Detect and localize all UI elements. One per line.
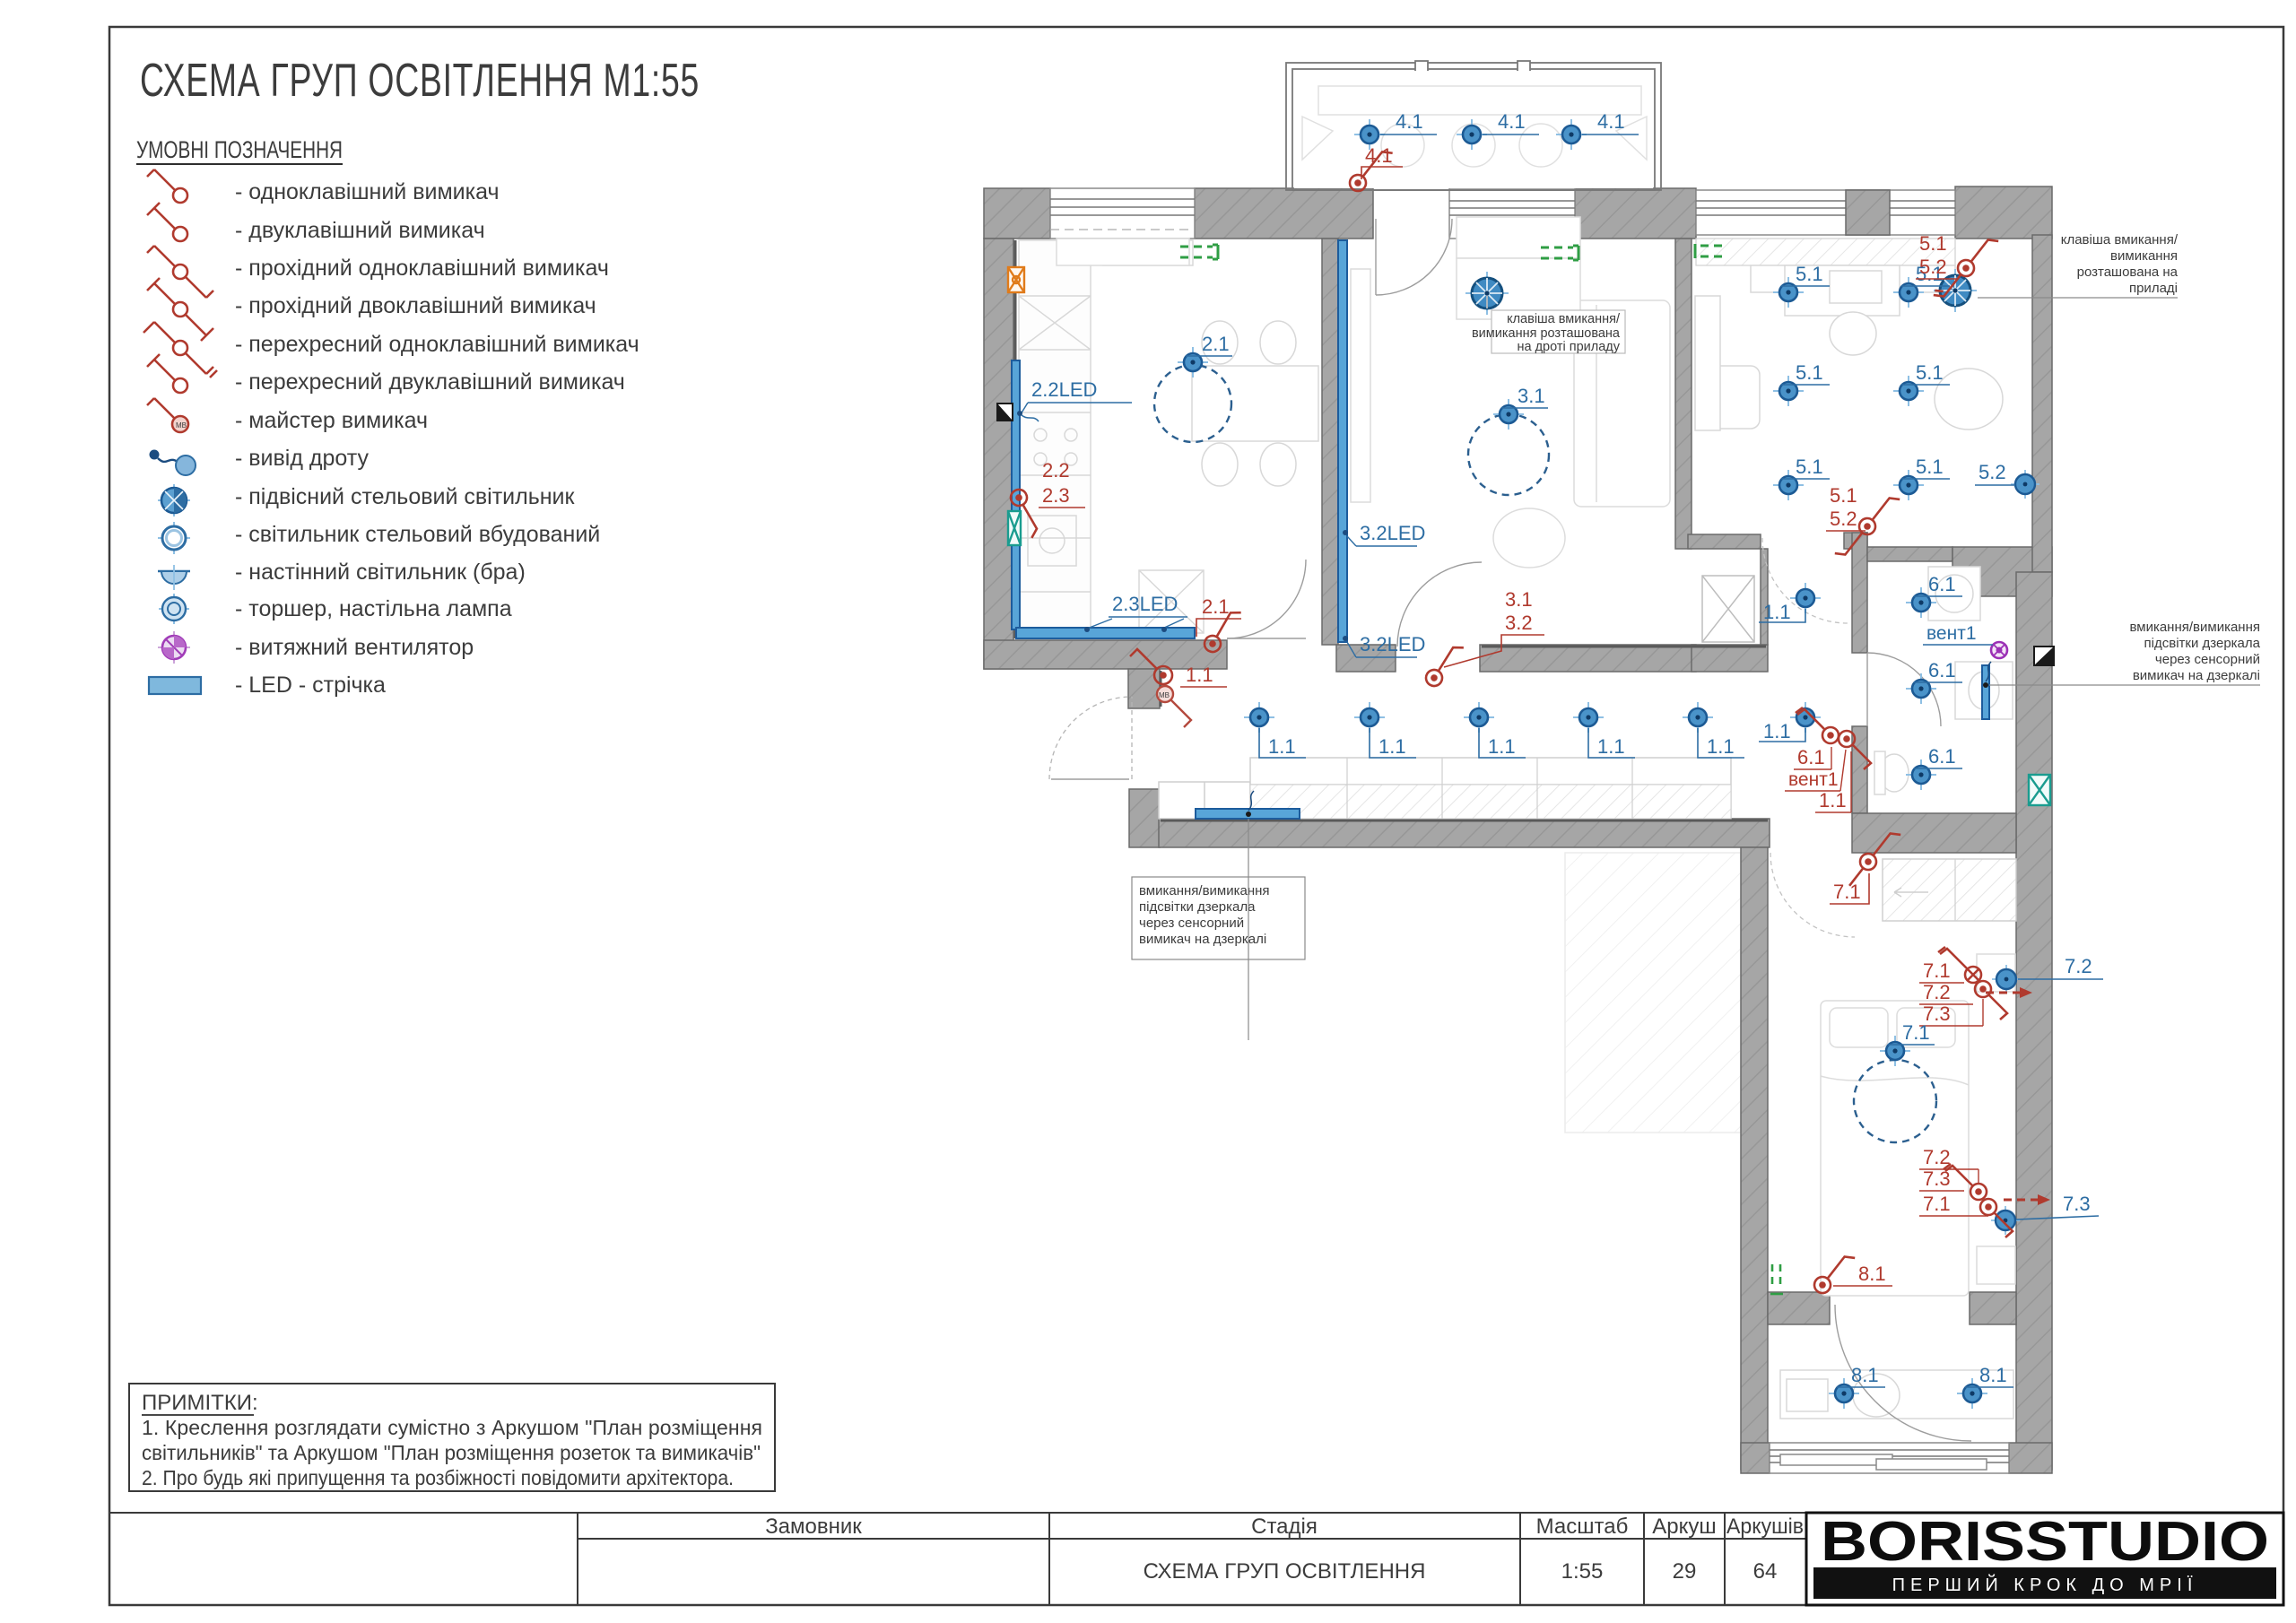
svg-text:3.2: 3.2 <box>1505 612 1533 634</box>
svg-text:5.2: 5.2 <box>1979 461 2006 483</box>
svg-text:6.1: 6.1 <box>1928 659 1956 681</box>
svg-text:64: 64 <box>1753 1559 1778 1584</box>
svg-text:вимикач на дзеркалі: вимикач на дзеркалі <box>1139 932 1266 947</box>
svg-text:розташована на: розташована на <box>2077 265 2179 280</box>
svg-text:2.2: 2.2 <box>1042 459 1070 482</box>
svg-text:5.1: 5.1 <box>1916 456 1944 478</box>
svg-text:BORISSTUDIO: BORISSTUDIO <box>1821 1511 2269 1573</box>
svg-text:УМОВНІ ПОЗНАЧЕННЯ: УМОВНІ ПОЗНАЧЕННЯ <box>136 136 343 163</box>
svg-text:6.1: 6.1 <box>1928 745 1956 768</box>
svg-text:- прохідний двоклавішний вимик: - прохідний двоклавішний вимикач <box>235 293 596 318</box>
svg-text:СХЕМА ГРУП ОСВІТЛЕННЯ М1:55: СХЕМА ГРУП ОСВІТЛЕННЯ М1:55 <box>140 55 700 107</box>
svg-text:7.2: 7.2 <box>1923 1146 1951 1168</box>
svg-text:5.1: 5.1 <box>1796 456 1823 478</box>
svg-text:Аркуш: Аркуш <box>1652 1515 1716 1539</box>
svg-text:7.2: 7.2 <box>2065 955 2092 977</box>
svg-text:вимикач на дзеркалі: вимикач на дзеркалі <box>2133 668 2260 683</box>
svg-text:на дроті приладу: на дроті приладу <box>1517 340 1620 354</box>
svg-text:підсвітки дзеркала: підсвітки дзеркала <box>2144 636 2261 651</box>
svg-text:- двуклавішний вимикач: - двуклавішний вимикач <box>235 218 485 243</box>
svg-text:Аркушів: Аркушів <box>1726 1515 1804 1539</box>
svg-text:8.1: 8.1 <box>1858 1263 1886 1285</box>
svg-text:2.3: 2.3 <box>1042 484 1070 507</box>
svg-text:- LED - стрічка: - LED - стрічка <box>235 673 386 698</box>
svg-text:клавіша вмикання/: клавіша вмикання/ <box>2061 232 2179 247</box>
svg-text:1.1: 1.1 <box>1707 735 1735 758</box>
svg-text:2.1: 2.1 <box>1202 595 1230 618</box>
svg-text:4.1: 4.1 <box>1597 110 1625 133</box>
svg-text:2.1: 2.1 <box>1202 333 1230 355</box>
svg-text:підсвітки дзеркала: підсвітки дзеркала <box>1139 899 1256 915</box>
svg-text:8.1: 8.1 <box>1979 1364 2007 1386</box>
svg-text:3.2LED: 3.2LED <box>1360 633 1425 655</box>
svg-text:5.2: 5.2 <box>1830 508 1857 530</box>
svg-text:Стадія: Стадія <box>1251 1515 1318 1539</box>
svg-text:1.1: 1.1 <box>1378 735 1406 758</box>
svg-text:клавіша вмикання/: клавіша вмикання/ <box>1507 312 1621 326</box>
svg-text:8.1: 8.1 <box>1851 1364 1879 1386</box>
svg-text:Масштаб: Масштаб <box>1536 1515 1629 1539</box>
svg-text:світильників" та Аркушом "План: світильників" та Аркушом "План розміщенн… <box>142 1441 761 1464</box>
svg-text:7.3: 7.3 <box>1923 1167 1951 1190</box>
svg-text:ПРИМІТКИ:: ПРИМІТКИ: <box>142 1391 258 1415</box>
svg-text:2.3LED: 2.3LED <box>1112 593 1178 615</box>
svg-text:Замовник: Замовник <box>765 1515 862 1539</box>
svg-text:ПЕРШИЙ КРОК ДО МРІЇ: ПЕРШИЙ КРОК ДО МРІЇ <box>1892 1574 2198 1595</box>
svg-text:2.2LED: 2.2LED <box>1031 378 1097 401</box>
svg-text:1. Креслення розглядати сум: 1. Креслення розглядати сумістно з Аркуш… <box>142 1416 762 1439</box>
svg-text:4.1: 4.1 <box>1396 110 1423 133</box>
svg-text:- перехресний одноклавішний ви: - перехресний одноклавішний вимикач <box>235 332 639 357</box>
svg-text:- світильник стельовий вбудова: - світильник стельовий вбудований <box>235 522 600 547</box>
svg-text:5.2: 5.2 <box>1919 256 1947 278</box>
svg-text:- торшер, настільна лампа: - торшер, настільна лампа <box>235 596 512 621</box>
svg-text:приладі: приладі <box>2129 281 2178 296</box>
svg-text:- вивід дроту: - вивід дроту <box>235 446 369 471</box>
svg-text:МВ: МВ <box>176 421 187 430</box>
svg-text:2. Про будь які припущення та: 2. Про будь які припущення та розбіжност… <box>142 1466 734 1489</box>
svg-text:4.1: 4.1 <box>1498 110 1526 133</box>
svg-text:3.1: 3.1 <box>1505 588 1533 611</box>
svg-text:1.1: 1.1 <box>1819 789 1847 811</box>
svg-text:вент1: вент1 <box>1788 769 1839 790</box>
svg-text:вимикання: вимикання <box>2110 248 2178 264</box>
svg-text:- настінний світильник (бра): - настінний світильник (бра) <box>235 560 526 585</box>
svg-text:вмикання/вимикання: вмикання/вимикання <box>1139 883 1270 898</box>
svg-text:- одноклавішний вимикач: - одноклавішний вимикач <box>235 179 499 204</box>
svg-text:7.2: 7.2 <box>1923 981 1951 1003</box>
svg-text:- прохідний одноклавішний вими: - прохідний одноклавішний вимикач <box>235 256 609 281</box>
svg-text:СХЕМА ГРУП ОСВІТЛЕННЯ: СХЕМА ГРУП ОСВІТЛЕННЯ <box>1144 1559 1426 1584</box>
svg-text:- майстер вимикач: - майстер вимикач <box>235 408 428 433</box>
svg-text:5.1: 5.1 <box>1916 361 1944 384</box>
svg-text:1.1: 1.1 <box>1186 664 1213 686</box>
svg-text:1.1: 1.1 <box>1268 735 1296 758</box>
svg-text:3.1: 3.1 <box>1518 385 1545 407</box>
svg-text:5.1: 5.1 <box>1830 484 1857 507</box>
svg-text:1.1: 1.1 <box>1597 735 1625 758</box>
svg-text:7.1: 7.1 <box>1902 1021 1930 1044</box>
svg-text:7.1: 7.1 <box>1833 881 1861 903</box>
svg-text:1.1: 1.1 <box>1488 735 1516 758</box>
svg-text:7.1: 7.1 <box>1923 1193 1951 1215</box>
svg-text:МВ: МВ <box>1159 691 1170 699</box>
svg-text:7.1: 7.1 <box>1923 959 1951 982</box>
svg-text:вент1: вент1 <box>1926 623 1977 644</box>
svg-text:3.2LED: 3.2LED <box>1360 522 1425 544</box>
svg-text:через сенсорний: через сенсорний <box>1139 916 1244 931</box>
svg-text:5.1: 5.1 <box>1796 361 1823 384</box>
svg-text:- перехресний двуклавішний вим: - перехресний двуклавішний вимикач <box>235 369 625 395</box>
svg-text:5.1: 5.1 <box>1796 263 1823 285</box>
svg-text:6.1: 6.1 <box>1928 573 1956 595</box>
svg-text:- витяжний вентилятор: - витяжний вентилятор <box>235 635 474 660</box>
svg-text:1.1: 1.1 <box>1763 601 1791 623</box>
svg-text:4.1: 4.1 <box>1365 144 1393 167</box>
svg-text:29: 29 <box>1673 1559 1697 1584</box>
svg-text:7.3: 7.3 <box>2063 1193 2091 1215</box>
svg-text:5.1: 5.1 <box>1919 232 1947 255</box>
svg-text:6.1: 6.1 <box>1797 746 1825 768</box>
svg-text:1.1: 1.1 <box>1763 720 1791 742</box>
svg-text:вимикання розташована: вимикання розташована <box>1472 326 1621 341</box>
svg-text:вмикання/вимикання: вмикання/вимикання <box>2129 620 2260 635</box>
svg-text:- підвісний стельовий світильн: - підвісний стельовий світильник <box>235 484 576 509</box>
svg-text:через сенсорний: через сенсорний <box>2155 652 2260 667</box>
svg-text:1:55: 1:55 <box>1561 1559 1604 1584</box>
